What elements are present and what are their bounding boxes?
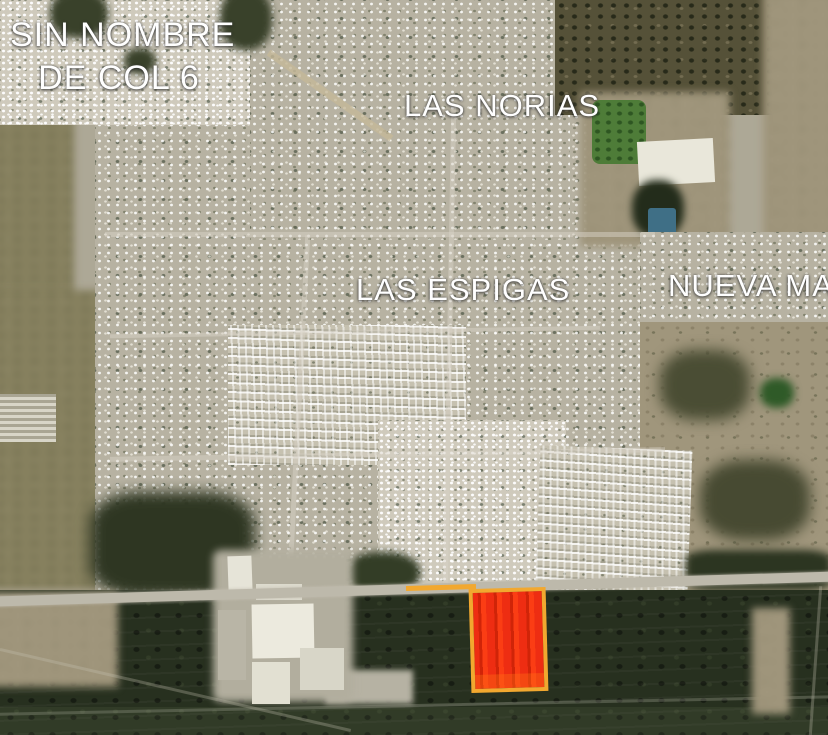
industrial-building-1 (227, 556, 252, 593)
terrain-sheds-far-left (0, 394, 56, 442)
industrial-building-5 (252, 662, 290, 704)
terrain-field-bottom-strip (0, 707, 828, 735)
satellite-map-canvas[interactable]: SIN NOMBRE DE COL 6 LAS NORIAS LAS ESPIG… (0, 0, 828, 735)
scrub-dark-blotch-2 (700, 460, 810, 540)
map-label-sin-nombre-de-col-6: SIN NOMBRE DE COL 6 (10, 14, 228, 100)
industrial-building-4 (300, 648, 344, 690)
scrub-dark-blotch-1 (660, 350, 750, 420)
street-horizontal-1 (105, 232, 655, 237)
map-label-line-1: SIN NOMBRE (10, 14, 228, 57)
highlighted-plot-rectangle (469, 587, 549, 693)
facility-white-building (637, 138, 715, 186)
industrial-yard (218, 610, 246, 680)
map-label-line-2: DE COL 6 (10, 57, 228, 100)
map-label-las-espigas: LAS ESPIGAS (356, 272, 570, 308)
terrain-housing-rows-southeast (536, 445, 693, 592)
scrub-trees-green (760, 378, 794, 408)
map-label-nueva-ma: NUEVA MA (668, 268, 828, 304)
terrain-scrub-right-edge (763, 0, 828, 252)
map-label-las-norias: LAS NORIAS (404, 88, 600, 124)
terrain-tan-strip-bottom-right (752, 608, 790, 714)
